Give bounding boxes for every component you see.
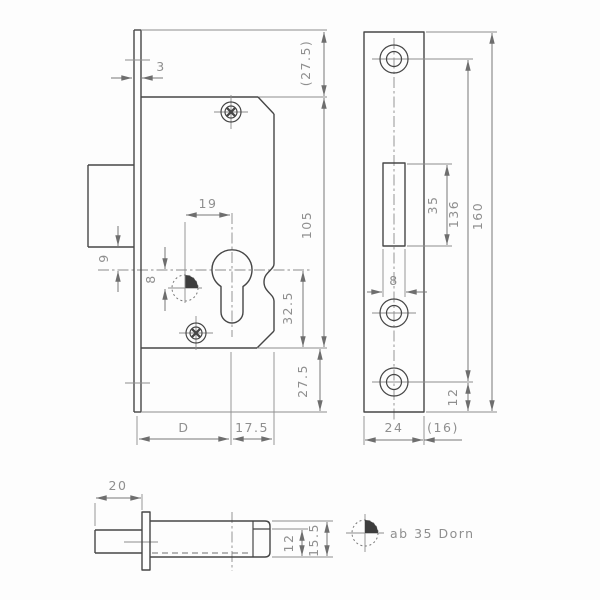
- technical-drawing-canvas: 3 (27.5) 105 19 9 8 32.5: [0, 0, 600, 600]
- dim-label: 3: [156, 59, 165, 74]
- dim-bolt-height: 12: [272, 529, 308, 556]
- dim-pin-offset: 8: [143, 247, 165, 311]
- dim-plate-side: (16): [424, 420, 462, 440]
- dim-label: 105: [299, 211, 314, 239]
- dim-center-to-case-bottom: 32.5: [280, 271, 303, 347]
- dim-label: (16): [427, 420, 459, 435]
- dim-label: D: [178, 420, 189, 435]
- dim-label: 9: [96, 253, 111, 262]
- dim-label: 32.5: [280, 291, 295, 325]
- case-right-edge-with-notch: [264, 114, 274, 331]
- faceplate-side-view: [142, 512, 150, 570]
- dim-label: 8: [143, 274, 158, 283]
- bottom-chamfer: [257, 331, 274, 348]
- dim-case-to-plate-bottom: 27.5: [295, 349, 320, 411]
- dim-hole-to-bottom: 12: [445, 383, 468, 411]
- dim-bolt-to-center: 9: [96, 226, 118, 292]
- dim-center-to-case-edge: 17.5: [233, 420, 272, 439]
- dim-cutout-width: 8: [367, 249, 427, 297]
- bolt-front-view: [88, 165, 134, 247]
- faceplate-front-view: 35 136 160 8 12 24: [364, 32, 497, 445]
- dim-label: (27.5): [298, 40, 313, 87]
- dim-label: 20: [109, 478, 128, 493]
- dim-bolt-throw: 20: [95, 478, 142, 526]
- legend: ab 35 Dorn: [346, 514, 475, 552]
- dim-label: 12: [281, 534, 296, 553]
- dim-label: 136: [446, 200, 461, 228]
- lock-drawing-svg: 3 (27.5) 105 19 9 8 32.5: [0, 0, 600, 600]
- top-chamfer: [258, 97, 274, 114]
- screw-head-icon: [214, 95, 248, 129]
- dim-plate-height: 160: [426, 32, 497, 412]
- screw-hole: [372, 45, 473, 73]
- dim-label: 160: [470, 202, 485, 230]
- dim-label: 17.5: [235, 420, 269, 435]
- dim-label: 12: [445, 388, 460, 407]
- dim-label: 27.5: [295, 364, 310, 398]
- dim-label: 15.5: [306, 523, 321, 557]
- screw-hole: [372, 299, 416, 327]
- lock-case-side-view: 3 (27.5) 105 19 9 8 32.5: [88, 30, 327, 445]
- faceplate-edge-view: [134, 30, 141, 412]
- dim-label: 35: [425, 196, 440, 215]
- dim-faceplate-thickness: 3: [111, 59, 166, 78]
- dim-label: 8: [389, 273, 398, 288]
- legend-note: ab 35 Dorn: [390, 526, 475, 541]
- dim-label: 24: [385, 420, 404, 435]
- dim-hole-spacing: 136: [446, 60, 468, 381]
- bolt-top-view: 20 12 15.5: [95, 478, 333, 571]
- bolt-outline: [95, 530, 142, 553]
- backset-marker-icon: [346, 514, 384, 552]
- dim-label: 19: [199, 196, 218, 211]
- dim-center-to-pin: 19: [186, 196, 230, 215]
- case-body-outline: [150, 521, 270, 557]
- dim-top-clearance: (27.5): [298, 32, 324, 96]
- screw-head-icon: [179, 316, 213, 350]
- dim-plate-width: 24: [364, 416, 424, 445]
